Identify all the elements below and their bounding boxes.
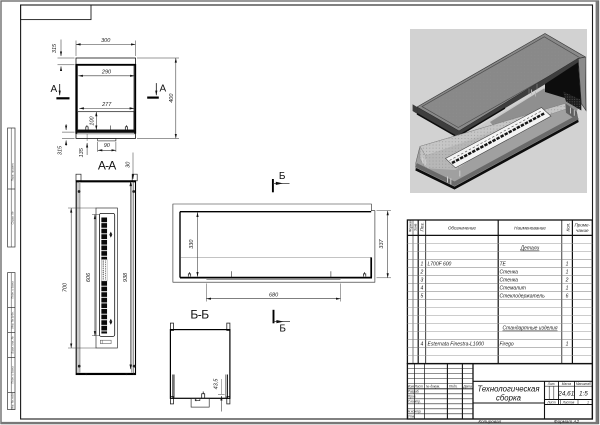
- svg-text:Стандартные изделия: Стандартные изделия: [502, 326, 557, 332]
- svg-text:Пров.: Пров.: [408, 395, 417, 399]
- svg-text:290: 290: [101, 69, 112, 75]
- svg-text:№ докум.: № докум.: [426, 384, 440, 388]
- svg-text:Обозначение: Обозначение: [448, 226, 477, 231]
- svg-text:Изм.Лист: Изм.Лист: [408, 384, 423, 388]
- svg-text:Дата: Дата: [462, 384, 472, 388]
- svg-text:Наименование: Наименование: [514, 226, 546, 231]
- svg-text:Инв. № подл.: Инв. № подл.: [11, 392, 15, 410]
- svg-text:Лист: Лист: [546, 401, 556, 405]
- svg-text:135: 135: [79, 147, 85, 157]
- svg-text:Firego: Firego: [500, 342, 514, 348]
- svg-text:1: 1: [566, 286, 569, 292]
- svg-text:4: 4: [421, 286, 424, 292]
- svg-text:Копировал: Копировал: [478, 419, 501, 424]
- svg-text:Разраб.: Разраб.: [408, 390, 420, 394]
- svg-text:90: 90: [104, 143, 111, 149]
- svg-text:Приме-: Приме-: [574, 223, 590, 228]
- svg-text:Листов: Листов: [562, 401, 575, 405]
- svg-text:Поз.: Поз.: [420, 222, 425, 231]
- svg-text:Подп. и дата: Подп. и дата: [11, 366, 15, 384]
- svg-text:Формат А2: Формат А2: [554, 419, 580, 424]
- svg-text:Взам. инв. №: Взам. инв. №: [11, 336, 15, 353]
- svg-text:1: 1: [566, 342, 569, 348]
- svg-text:А-А: А-А: [98, 158, 116, 172]
- svg-text:1:5: 1:5: [579, 391, 588, 398]
- svg-text:400: 400: [169, 93, 175, 103]
- svg-text:L700F 600: L700F 600: [428, 262, 452, 268]
- svg-text:Масса: Масса: [562, 382, 572, 386]
- svg-text:Б: Б: [279, 324, 286, 335]
- svg-text:Кол.: Кол.: [565, 222, 570, 231]
- svg-text:1: 1: [566, 262, 569, 268]
- svg-text:Н.контр.: Н.контр.: [408, 410, 422, 414]
- svg-text:Стенка: Стенка: [500, 278, 519, 284]
- svg-text:315: 315: [58, 145, 64, 155]
- svg-text:Лит.: Лит.: [547, 382, 556, 386]
- svg-text:Стемалит: Стемалит: [500, 286, 526, 292]
- svg-text:700: 700: [62, 282, 68, 292]
- svg-text:43,5: 43,5: [213, 378, 219, 390]
- svg-text:Детали: Детали: [520, 246, 540, 252]
- svg-text:2: 2: [565, 278, 569, 284]
- svg-text:Подп. и дата: Подп. и дата: [11, 281, 15, 299]
- svg-text:300: 300: [101, 38, 111, 44]
- svg-text:100: 100: [90, 115, 96, 125]
- svg-text:Перв. примен.: Перв. примен.: [11, 162, 15, 181]
- svg-text:938: 938: [123, 272, 129, 282]
- svg-text:Справ. №: Справ. №: [11, 212, 15, 225]
- svg-text:2: 2: [420, 270, 424, 276]
- svg-text:1: 1: [421, 262, 424, 268]
- svg-text:ТЕ: ТЕ: [500, 262, 507, 268]
- svg-text:315: 315: [52, 43, 58, 53]
- svg-text:1: 1: [587, 401, 589, 405]
- svg-text:Esternata Finestra-L1000: Esternata Finestra-L1000: [428, 342, 485, 348]
- svg-text:Масштаб: Масштаб: [576, 382, 591, 386]
- svg-text:337: 337: [379, 238, 385, 248]
- svg-text:Б: Б: [279, 171, 286, 182]
- svg-text:Т.контр.: Т.контр.: [408, 400, 421, 404]
- svg-text:30: 30: [125, 161, 131, 168]
- svg-text:чание: чание: [576, 228, 589, 233]
- svg-text:1: 1: [566, 270, 569, 276]
- svg-text:Технологическая: Технологическая: [477, 385, 540, 394]
- svg-text:5: 5: [421, 294, 424, 300]
- svg-text:6: 6: [566, 294, 569, 300]
- svg-text:Б-Б: Б-Б: [190, 307, 209, 321]
- svg-text:330: 330: [189, 239, 195, 249]
- svg-text:Утв.: Утв.: [408, 415, 415, 419]
- svg-text:3: 3: [421, 278, 424, 284]
- svg-text:Зона: Зона: [414, 224, 418, 231]
- svg-text:A: A: [51, 84, 58, 95]
- svg-text:Стеклодержатель: Стеклодержатель: [500, 294, 546, 300]
- svg-text:277: 277: [101, 102, 112, 108]
- svg-text:сборка: сборка: [496, 394, 522, 403]
- svg-text:A: A: [160, 84, 167, 95]
- svg-text:Формат: Формат: [408, 219, 412, 232]
- svg-text:Стенка: Стенка: [500, 270, 519, 276]
- svg-text:680: 680: [269, 292, 279, 298]
- svg-text:Подп.: Подп.: [449, 384, 458, 388]
- svg-text:24,61: 24,61: [557, 391, 574, 398]
- svg-text:Инв. № дубл.: Инв. № дубл.: [11, 311, 15, 328]
- svg-text:4: 4: [421, 342, 424, 348]
- svg-text:606: 606: [86, 272, 92, 282]
